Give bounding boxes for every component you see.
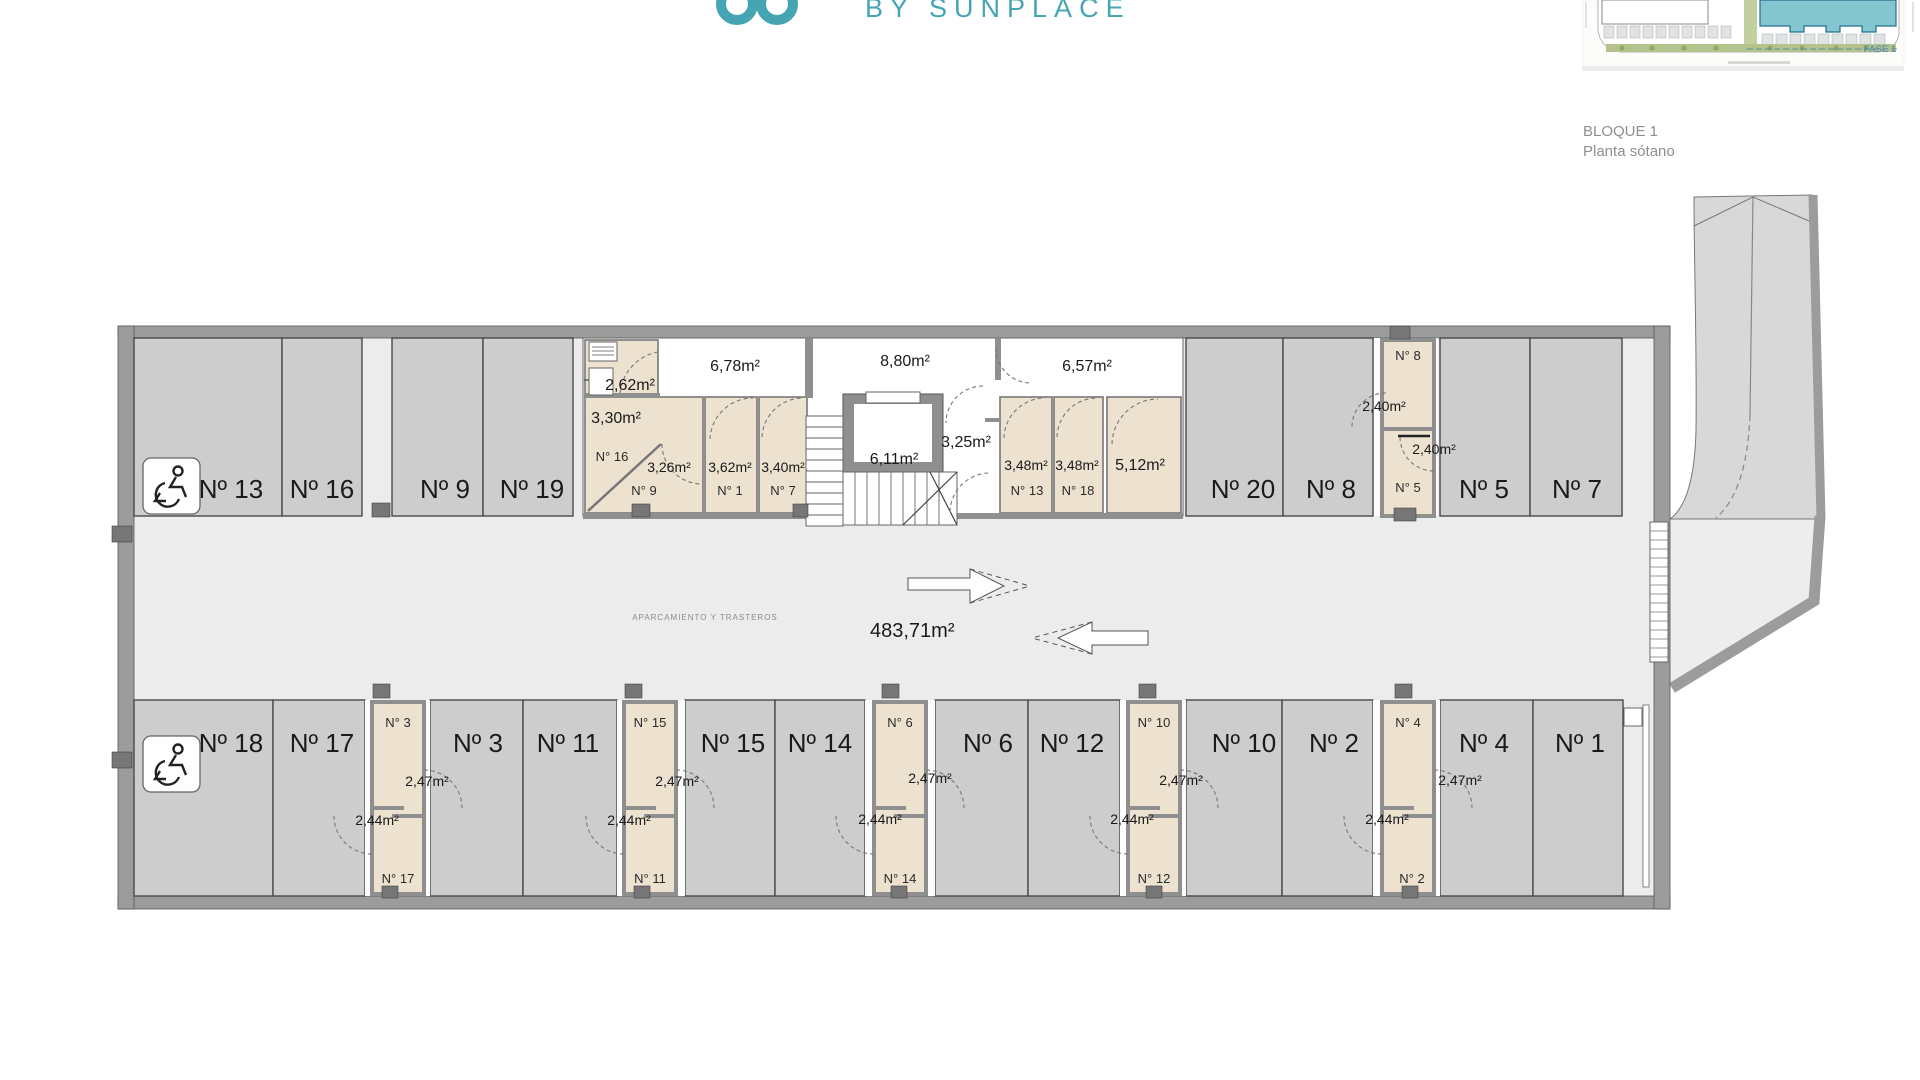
title-block: BLOQUE 1 Planta sótano [1583,123,1675,160]
corridor-left-area: 6,78m² [710,358,760,375]
side-gate [1643,705,1649,887]
parking-label-1: Nº 1 [1555,728,1605,758]
gate-grille [1650,522,1668,662]
parking-label-7: Nº 7 [1552,474,1602,504]
storage-b2-bottom-label: N° 11 [634,871,666,886]
storage-b3-bottom-label: N° 14 [884,871,917,886]
parking-label-15: Nº 15 [701,728,765,758]
storage-right-top-label: N° 8 [1395,348,1420,363]
parking-label-8: Nº 8 [1306,474,1356,504]
storage13-area: 3,48m² [1004,457,1048,473]
storage-room-512 [1107,397,1181,513]
ramp-surface [1670,195,1820,519]
parking-label-14: Nº 14 [788,728,852,758]
site-map-lower-strip [1582,66,1904,71]
vehicle-ramp [1670,195,1821,519]
storage7-area: 3,40m² [761,459,805,475]
map-edge-text-left [1585,2,1587,28]
parking-label-5: Nº 5 [1459,474,1509,504]
map-edge-text-right [1912,2,1914,32]
floorplan-sheet: BY SUNPLACE FASE 1 BLOQUE 1 Planta sótan… [0,0,1920,1080]
storage-right-bottom-label: N° 5 [1395,480,1420,495]
parking-label-9: Nº 9 [420,474,470,504]
utility-area: 2,62m² [605,377,655,394]
storage-b5-bottom-label: N° 2 [1399,871,1424,886]
storage18-label: N° 18 [1062,483,1095,498]
core-wall-corridor [805,338,813,398]
elevator-area: 6,11m² [870,451,919,468]
storage-b3-top-label: N° 6 [887,715,912,730]
logo-ring-left-icon [721,0,753,20]
storage-b2-top-area: 2,47m² [655,773,699,789]
corridor-right-area: 6,57m² [1062,358,1112,375]
accessible-badge-top [143,458,200,514]
entrance-floor [1668,519,1818,688]
floorplan-drawing: BY SUNPLACE FASE 1 BLOQUE 1 Planta sótan… [0,0,1920,1080]
storage-b5-bottom-area: 2,44m² [1365,811,1409,827]
title-line1: BLOQUE 1 [1583,123,1658,140]
left-wall-pillar-lower [112,752,132,768]
parking-label-18: Nº 18 [199,728,263,758]
storage-b2-bottom-area: 2,44m² [607,812,651,828]
parking-label-11: Nº 11 [537,728,600,758]
corridor-mid-area: 8,80m² [880,353,930,370]
storage16-label: N° 16 [596,449,629,464]
parking-label-12: Nº 12 [1040,728,1104,758]
parking-label-4: Nº 4 [1459,728,1509,758]
storage-b4-bottom-label: N° 12 [1138,871,1171,886]
storage18-area: 3,48m² [1055,457,1099,473]
storage-b1-top-area: 2,47m² [405,773,449,789]
brand-logo [721,0,793,20]
storage-right-top-area: 2,40m² [1362,398,1406,414]
parking-label-13: Nº 13 [199,474,263,504]
parking-label-2: Nº 2 [1309,728,1359,758]
parking-label-16: Nº 16 [290,474,354,504]
site-building-left [1602,0,1708,24]
parking-label-19: Nº 19 [500,474,564,504]
storage-b1-bottom-area: 2,44m² [355,812,399,828]
storage1-label: N° 1 [717,483,742,498]
zone-label: APARCAMIENTO Y TRASTEROS [632,613,778,622]
brand-text: BY SUNPLACE [865,0,1131,23]
parking-label-17: Nº 17 [290,728,354,758]
storage7-label: N° 7 [770,483,795,498]
logo-ring-right-icon [761,0,793,20]
title-line2: Planta sótano [1583,143,1675,160]
street-text-placeholder [1728,61,1790,64]
parking-label-10: Nº 10 [1212,728,1276,758]
storage-b1-bottom-label: N° 17 [382,871,415,886]
parking-label-6: Nº 6 [963,728,1013,758]
storage-b1-top-label: N° 3 [385,715,410,730]
wall-left [118,326,134,909]
core-wall-657 [995,338,1001,380]
site-map-thumbnail: FASE 1 [1582,0,1914,71]
parking-label-20: Nº 20 [1211,474,1275,504]
storage512-area: 5,12m² [1115,457,1165,474]
storage-b4-top-area: 2,47m² [1159,772,1203,788]
parking-label-3: Nº 3 [453,728,503,758]
lobby-area: 3,25m² [941,434,991,451]
storage9-label: N° 9 [631,483,656,498]
storage-b5-top-label: N° 4 [1395,715,1420,730]
storage-b5-top-area: 2,47m² [1438,772,1482,788]
accessible-badge-bottom [143,736,200,792]
storage-b4-top-label: N° 10 [1138,715,1171,730]
storage-b4-bottom-area: 2,44m² [1110,811,1154,827]
gate-control-box [1624,708,1642,726]
storage-right-bottom-area: 2,40m² [1412,441,1456,457]
site-green-center [1744,0,1757,44]
storage-b3-bottom-area: 2,44m² [858,811,902,827]
storage13-label: N° 13 [1011,483,1044,498]
total-area-label: 483,71m² [870,620,955,642]
left-wall-pillar-upper [112,526,132,542]
fase-label: FASE 1 [1864,44,1896,55]
storage1-area: 3,62m² [708,459,752,475]
storage-b2-top-label: N° 15 [634,715,667,730]
stair-core: 6,78m² 8,80m² 6,57m² 2,62m² 3,30m² N° 16… [583,338,1183,526]
wall-top [118,326,1670,338]
storage16-area: 3,30m² [591,410,641,427]
storage9-area: 3,26m² [647,459,691,475]
storage-b3-top-area: 2,47m² [908,770,952,786]
elevator-door [866,392,920,403]
